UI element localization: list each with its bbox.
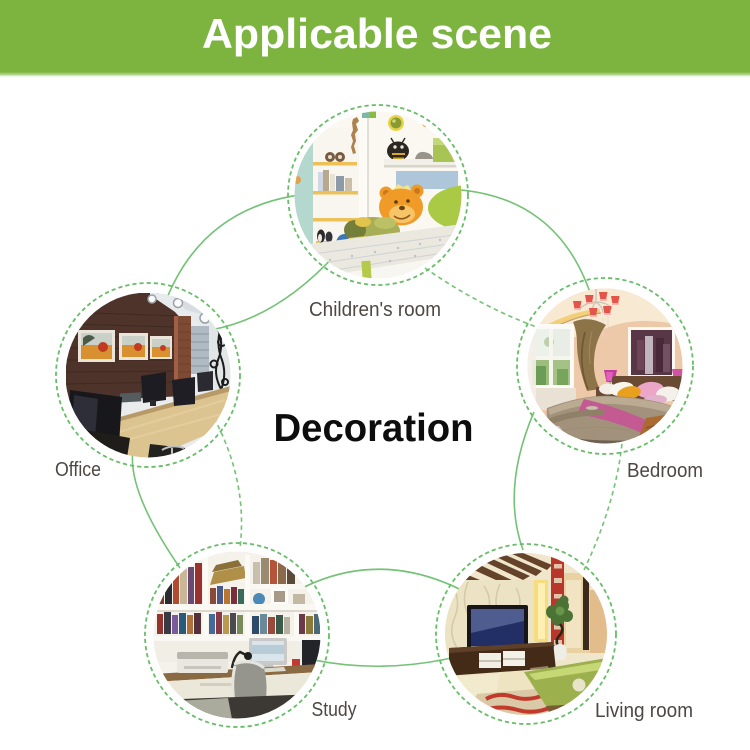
svg-text:Bedroom: Bedroom [627, 460, 703, 482]
svg-text:Children's room: Children's room [309, 299, 441, 321]
svg-text:Decoration: Decoration [274, 407, 474, 450]
svg-text:Study: Study [312, 699, 357, 721]
svg-text:Office: Office [55, 459, 101, 481]
svg-text:Applicable scene: Applicable scene [202, 10, 552, 57]
svg-text:Living room: Living room [595, 700, 693, 722]
